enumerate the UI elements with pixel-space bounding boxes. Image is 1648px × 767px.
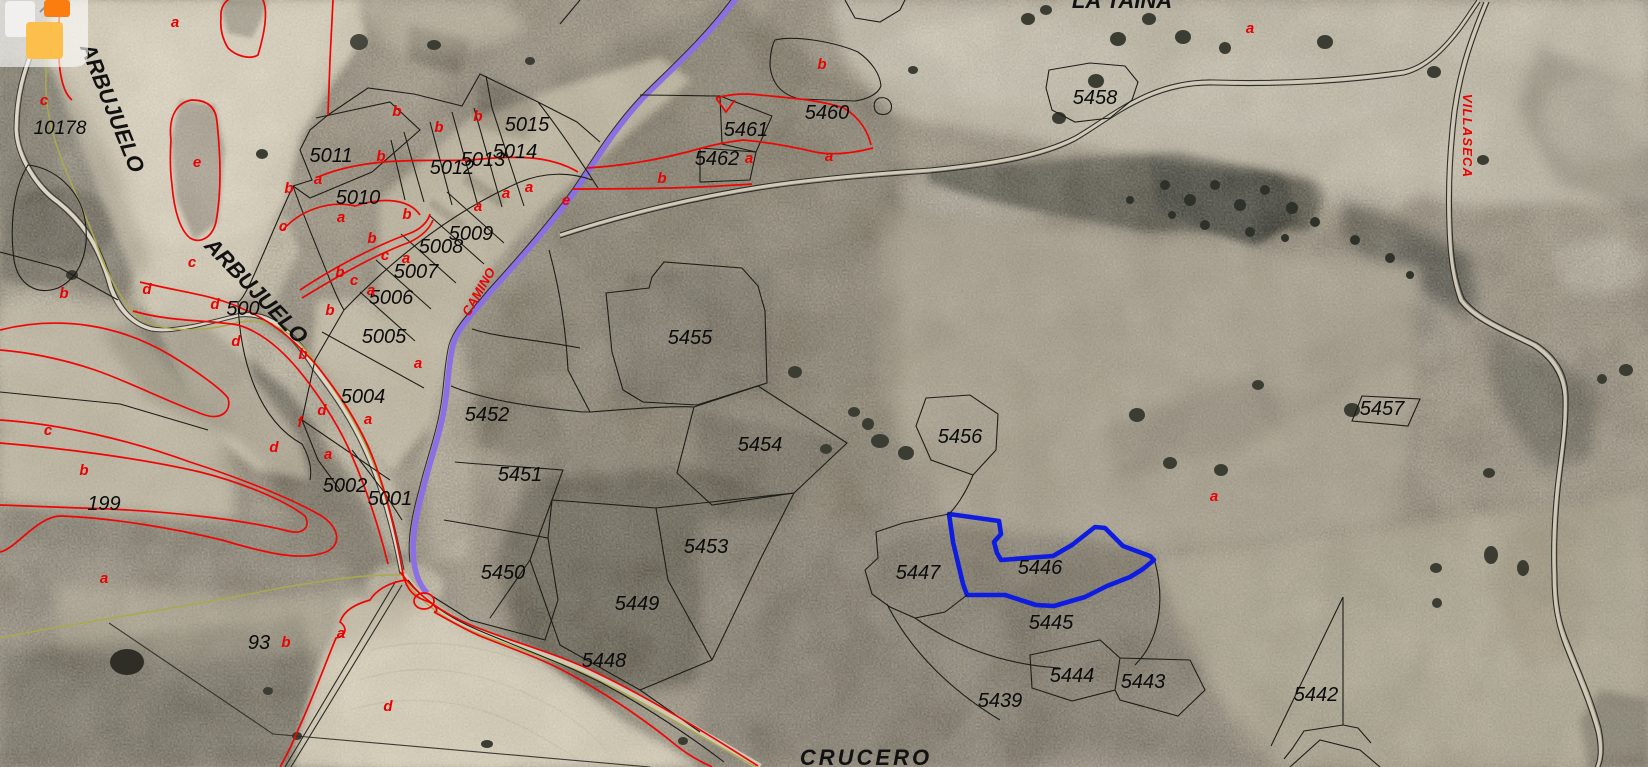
svg-text:a: a: [324, 446, 332, 463]
svg-text:a: a: [171, 14, 179, 31]
svg-text:199: 199: [87, 493, 120, 515]
svg-text:b: b: [335, 264, 344, 281]
svg-text:LA TAIÑA: LA TAIÑA: [1072, 0, 1172, 13]
svg-text:a: a: [825, 148, 833, 165]
svg-text:CRUCERO: CRUCERO: [800, 745, 932, 767]
svg-text:5457: 5457: [1360, 398, 1405, 420]
svg-text:5439: 5439: [978, 690, 1023, 712]
svg-text:5454: 5454: [738, 434, 783, 456]
svg-text:b: b: [817, 56, 826, 73]
svg-text:a: a: [1246, 20, 1254, 37]
svg-text:5011: 5011: [309, 145, 352, 167]
svg-text:b: b: [79, 462, 88, 479]
svg-text:5005: 5005: [362, 326, 407, 348]
svg-text:a: a: [502, 185, 510, 202]
svg-text:b: b: [434, 119, 443, 136]
svg-text:b: b: [59, 285, 68, 302]
svg-text:c: c: [381, 247, 390, 264]
svg-text:c: c: [44, 422, 53, 439]
svg-text:b: b: [473, 108, 482, 125]
svg-text:93: 93: [248, 632, 270, 654]
svg-text:5461: 5461: [724, 119, 769, 141]
svg-text:d: d: [383, 698, 393, 715]
svg-text:5448: 5448: [582, 650, 627, 672]
svg-text:5008: 5008: [419, 236, 464, 258]
svg-text:b: b: [367, 230, 376, 247]
svg-text:5006: 5006: [369, 287, 414, 309]
svg-text:d: d: [269, 439, 279, 456]
svg-text:5450: 5450: [481, 562, 526, 584]
svg-text:5010: 5010: [336, 187, 381, 209]
svg-text:a: a: [474, 198, 482, 215]
svg-text:5445: 5445: [1029, 612, 1074, 634]
svg-text:5442: 5442: [1294, 684, 1339, 706]
svg-text:a: a: [525, 179, 533, 196]
svg-text:b: b: [392, 103, 401, 120]
svg-text:a: a: [367, 282, 375, 299]
svg-text:a: a: [1210, 488, 1218, 505]
svg-text:5444: 5444: [1050, 665, 1095, 687]
svg-text:5001: 5001: [368, 488, 413, 510]
svg-text:5456: 5456: [938, 426, 983, 448]
svg-text:a: a: [745, 150, 753, 167]
svg-text:b: b: [298, 346, 307, 363]
svg-text:c: c: [188, 254, 197, 271]
svg-text:5007: 5007: [394, 261, 439, 283]
svg-text:5004: 5004: [341, 386, 386, 408]
svg-text:c: c: [40, 92, 49, 109]
svg-text:5453: 5453: [684, 536, 729, 558]
svg-text:b: b: [402, 206, 411, 223]
svg-text:b: b: [376, 148, 385, 165]
svg-text:VILLASECA: VILLASECA: [1460, 94, 1475, 178]
svg-text:a: a: [337, 209, 345, 226]
svg-text:c: c: [279, 218, 288, 235]
svg-text:5451: 5451: [498, 464, 543, 486]
svg-text:5015: 5015: [505, 114, 550, 136]
svg-text:5458: 5458: [1073, 87, 1118, 109]
svg-text:b: b: [284, 180, 293, 197]
svg-text:5443: 5443: [1121, 671, 1166, 693]
svg-text:a: a: [414, 355, 422, 372]
svg-text:c: c: [350, 272, 359, 289]
svg-text:b: b: [281, 634, 290, 651]
svg-text:e: e: [562, 192, 570, 209]
svg-text:10178: 10178: [34, 118, 87, 139]
svg-text:a: a: [337, 625, 345, 642]
svg-text:b: b: [657, 170, 666, 187]
svg-text:a: a: [364, 411, 372, 428]
svg-text:d: d: [317, 402, 327, 419]
svg-text:5014: 5014: [493, 141, 538, 163]
svg-text:5446: 5446: [1018, 557, 1063, 579]
svg-text:a: a: [100, 570, 108, 587]
svg-text:d: d: [231, 333, 241, 350]
svg-text:e: e: [193, 154, 201, 171]
svg-text:500: 500: [226, 298, 259, 320]
svg-text:5449: 5449: [615, 593, 660, 615]
svg-text:5462: 5462: [695, 148, 740, 170]
svg-text:b: b: [325, 302, 334, 319]
svg-text:d: d: [210, 296, 220, 313]
svg-text:5460: 5460: [805, 102, 850, 124]
svg-text:5455: 5455: [668, 327, 713, 349]
svg-text:5452: 5452: [465, 404, 510, 426]
svg-text:5002: 5002: [323, 475, 368, 497]
svg-text:a: a: [402, 250, 410, 267]
svg-text:a: a: [314, 171, 322, 188]
svg-text:d: d: [142, 281, 152, 298]
svg-text:5447: 5447: [896, 562, 941, 584]
